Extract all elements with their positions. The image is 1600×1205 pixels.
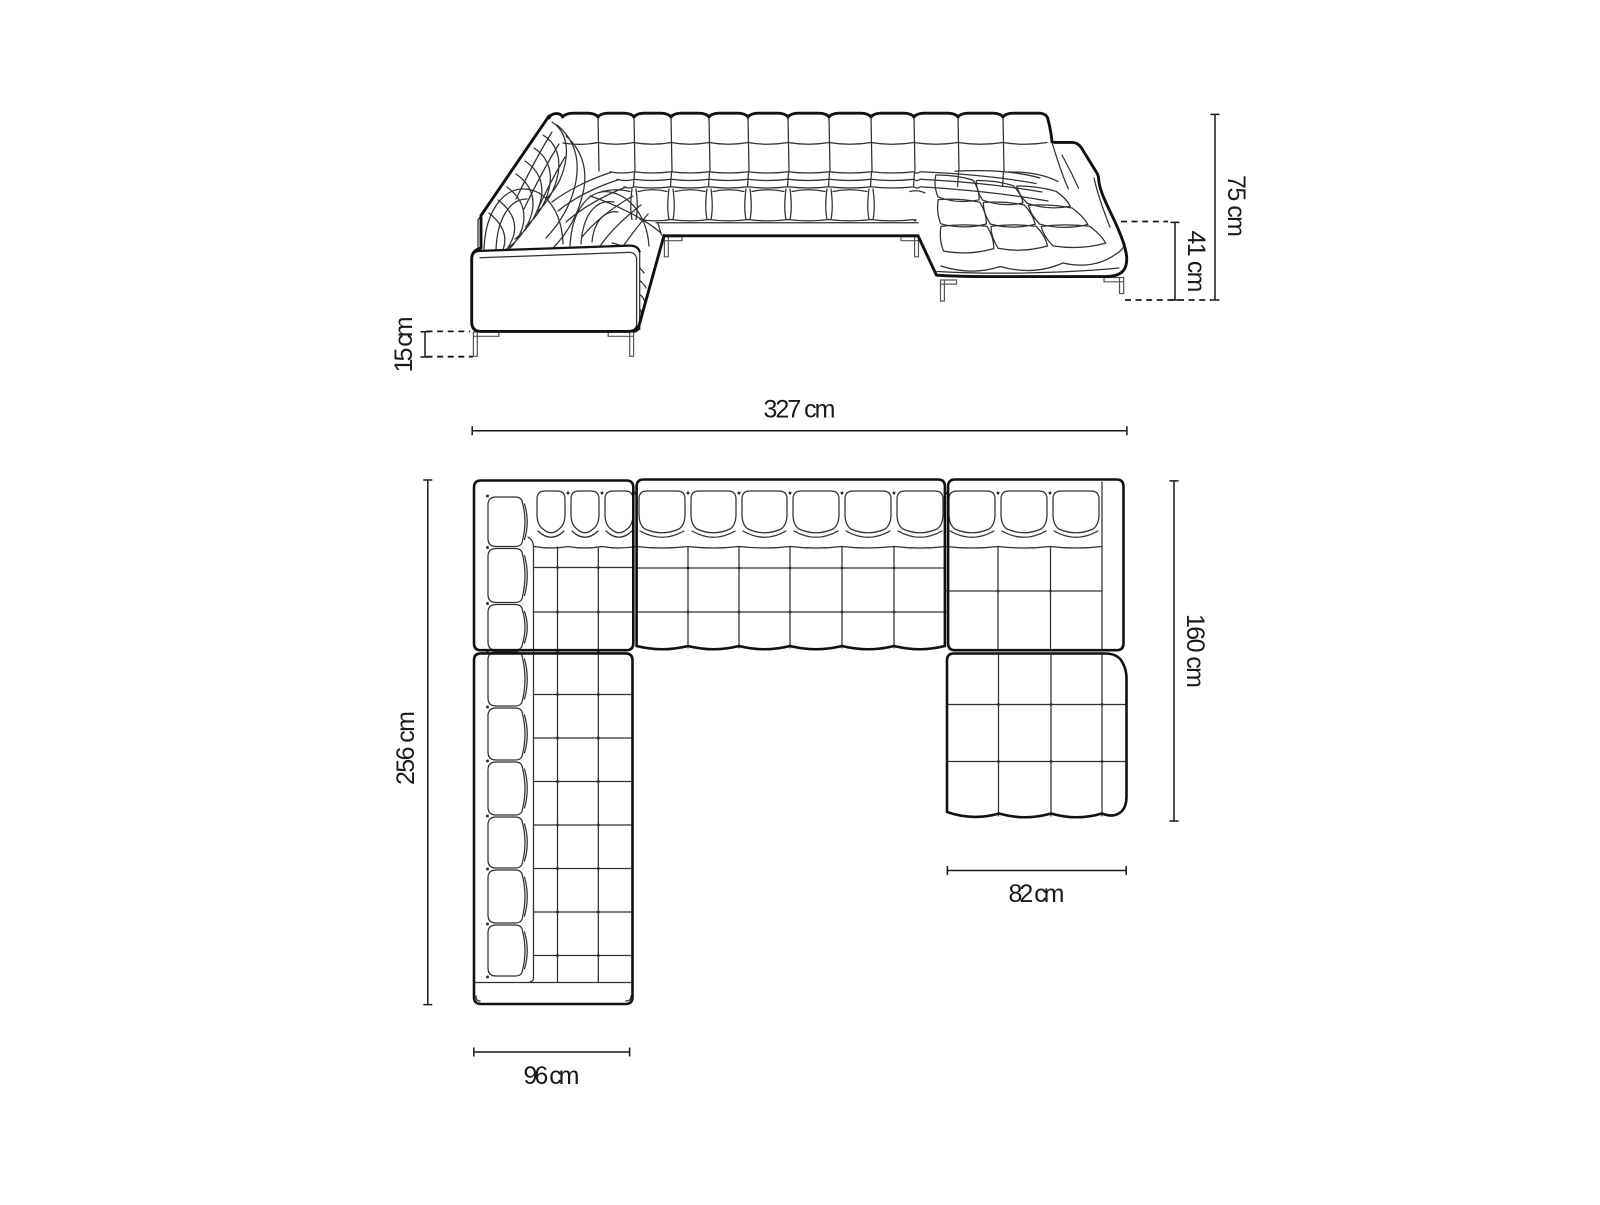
svg-text:327 cm: 327 cm [764, 396, 836, 424]
svg-text:15 cm: 15 cm [390, 316, 418, 372]
svg-text:96 cm: 96 cm [524, 1062, 580, 1090]
svg-text:75 cm: 75 cm [1222, 175, 1250, 237]
svg-text:160 cm: 160 cm [1181, 614, 1209, 688]
svg-text:82 cm: 82 cm [1009, 880, 1065, 908]
svg-text:41 cm: 41 cm [1182, 231, 1210, 293]
svg-text:256 cm: 256 cm [392, 711, 420, 785]
